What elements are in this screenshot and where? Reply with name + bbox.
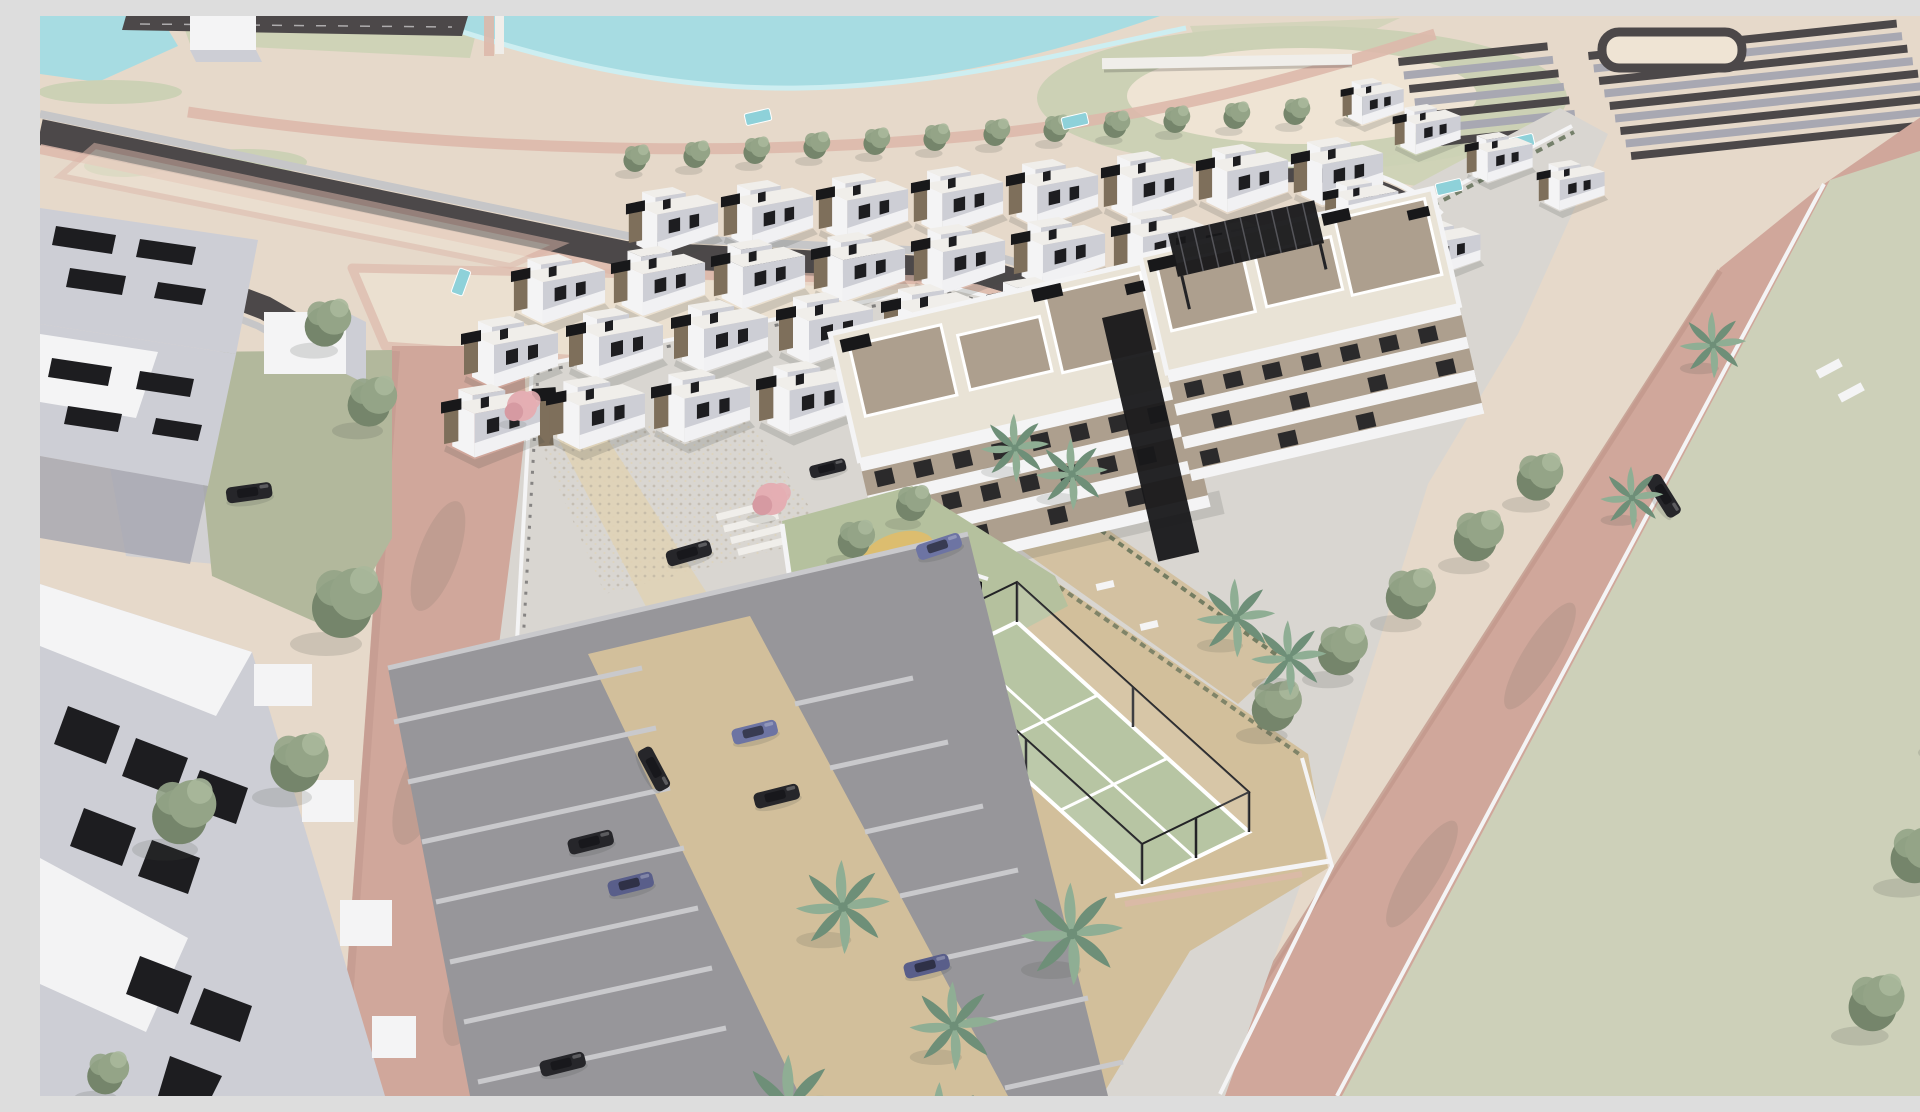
balcony-box (372, 1016, 416, 1058)
balcony-box (254, 664, 312, 706)
utility-hut (190, 16, 262, 62)
render-viewport (40, 16, 1920, 1096)
aerial-render (40, 16, 1920, 1096)
balcony-box (340, 900, 392, 946)
loop-road (1602, 32, 1742, 68)
